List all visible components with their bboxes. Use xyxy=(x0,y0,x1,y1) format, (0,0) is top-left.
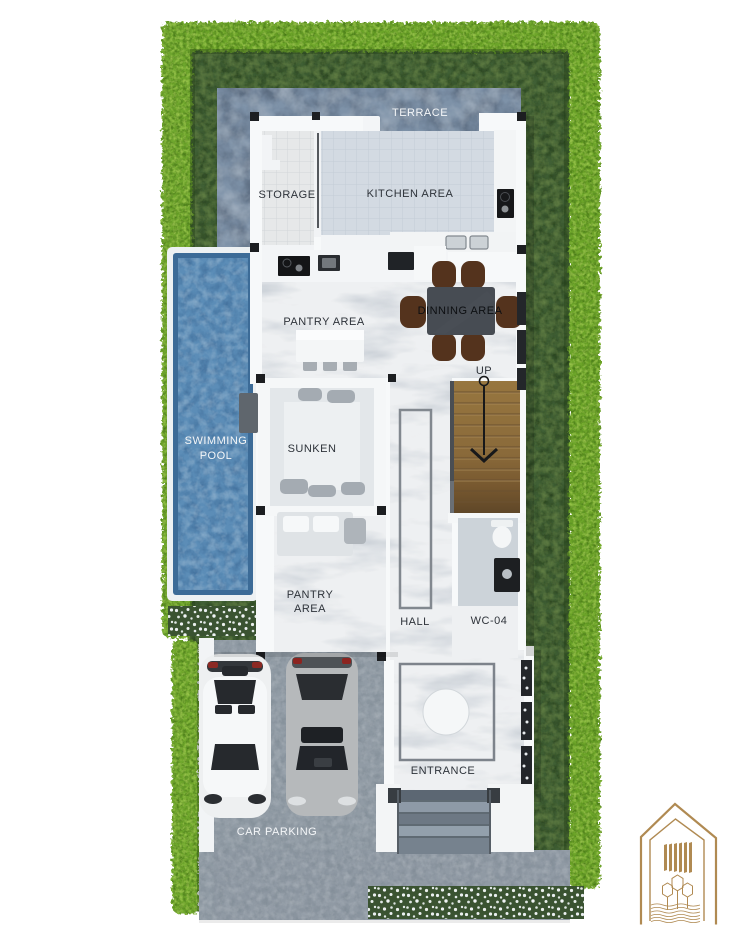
svg-text:TERRACE: TERRACE xyxy=(392,107,448,119)
svg-text:UP: UP xyxy=(476,365,492,377)
svg-text:PANTRY AREA: PANTRY AREA xyxy=(283,316,364,328)
svg-text:KITCHEN AREA: KITCHEN AREA xyxy=(367,188,454,200)
svg-text:ENTRANCE: ENTRANCE xyxy=(411,765,476,777)
svg-text:PANTRY: PANTRY xyxy=(287,589,334,601)
svg-text:POOL: POOL xyxy=(200,450,233,462)
svg-text:SWIMMING: SWIMMING xyxy=(185,435,248,447)
svg-text:STORAGE: STORAGE xyxy=(258,189,315,201)
svg-text:AREA: AREA xyxy=(294,603,326,615)
svg-text:SUNKEN: SUNKEN xyxy=(288,443,337,455)
svg-text:WC-04: WC-04 xyxy=(471,615,508,627)
svg-text:HALL: HALL xyxy=(400,616,430,628)
svg-text:CAR PARKING: CAR PARKING xyxy=(237,826,317,838)
svg-text:DINNING AREA: DINNING AREA xyxy=(418,305,503,317)
